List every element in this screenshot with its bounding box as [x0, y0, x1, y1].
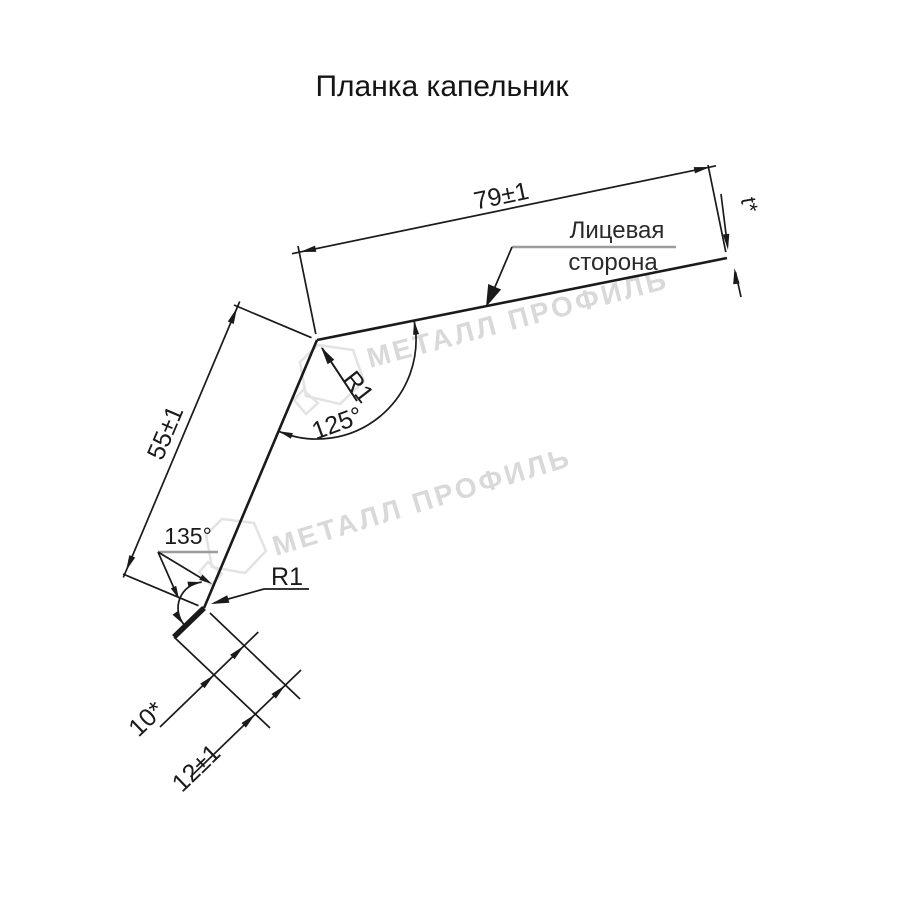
arrowhead-icon [279, 431, 293, 438]
arrowhead-icon [126, 555, 135, 571]
brand-hexagon-icon [294, 390, 318, 414]
face-side-label-line2: сторона [568, 249, 658, 276]
arrowhead-icon [173, 611, 185, 624]
extension-line [123, 574, 199, 606]
page-title: Планка капельник [315, 70, 569, 103]
radius-bottom-label: R1 [271, 563, 303, 591]
angle-bottom-label: 135° [164, 523, 212, 549]
dim-thickness-label: t* [736, 195, 763, 214]
watermark-layer: МЕТАЛЛ ПРОФИЛЬ МЕТАЛЛ ПРОФИЛЬ [199, 263, 672, 585]
dim-side-length-label: 55±1 [142, 402, 189, 464]
arrowhead-icon [300, 246, 316, 252]
arrowhead-icon [211, 595, 229, 604]
extension-line [234, 305, 312, 338]
arrowhead-icon [733, 268, 739, 284]
arrowhead-icon [171, 586, 179, 599]
extension-line [298, 246, 316, 334]
drawing-page: МЕТАЛЛ ПРОФИЛЬ МЕТАЛЛ ПРОФИЛЬ 79±1 t* Ли… [0, 0, 900, 900]
watermark-text: МЕТАЛЛ ПРОФИЛЬ [364, 263, 672, 373]
dimension-side-length: 55±1 [123, 302, 312, 606]
watermark-text: МЕТАЛЛ ПРОФИЛЬ [269, 441, 575, 562]
extension-line [210, 613, 300, 699]
arrowhead-icon [228, 308, 237, 324]
arrowhead-icon [694, 167, 710, 173]
arrowhead-icon [188, 582, 202, 588]
arrowhead-icon [413, 321, 419, 335]
technical-drawing: МЕТАЛЛ ПРОФИЛЬ МЕТАЛЛ ПРОФИЛЬ 79±1 t* Ли… [0, 0, 900, 900]
arrowhead-icon [321, 347, 334, 364]
dimension-thickness: t* [721, 194, 763, 297]
dim-hem-inner-label: 10* [123, 696, 170, 742]
angle-top-label: 125° [308, 401, 366, 445]
dimension-hem: 10* 12±1 [123, 613, 301, 798]
face-side-label-line1: Лицевая [570, 217, 665, 244]
brand-hexagon-icon [206, 519, 266, 573]
dim-top-length-label: 79±1 [471, 177, 531, 216]
angle-bottom-bend: 135° [158, 523, 218, 625]
dim-hem-outer-label: 12±1 [167, 739, 226, 798]
